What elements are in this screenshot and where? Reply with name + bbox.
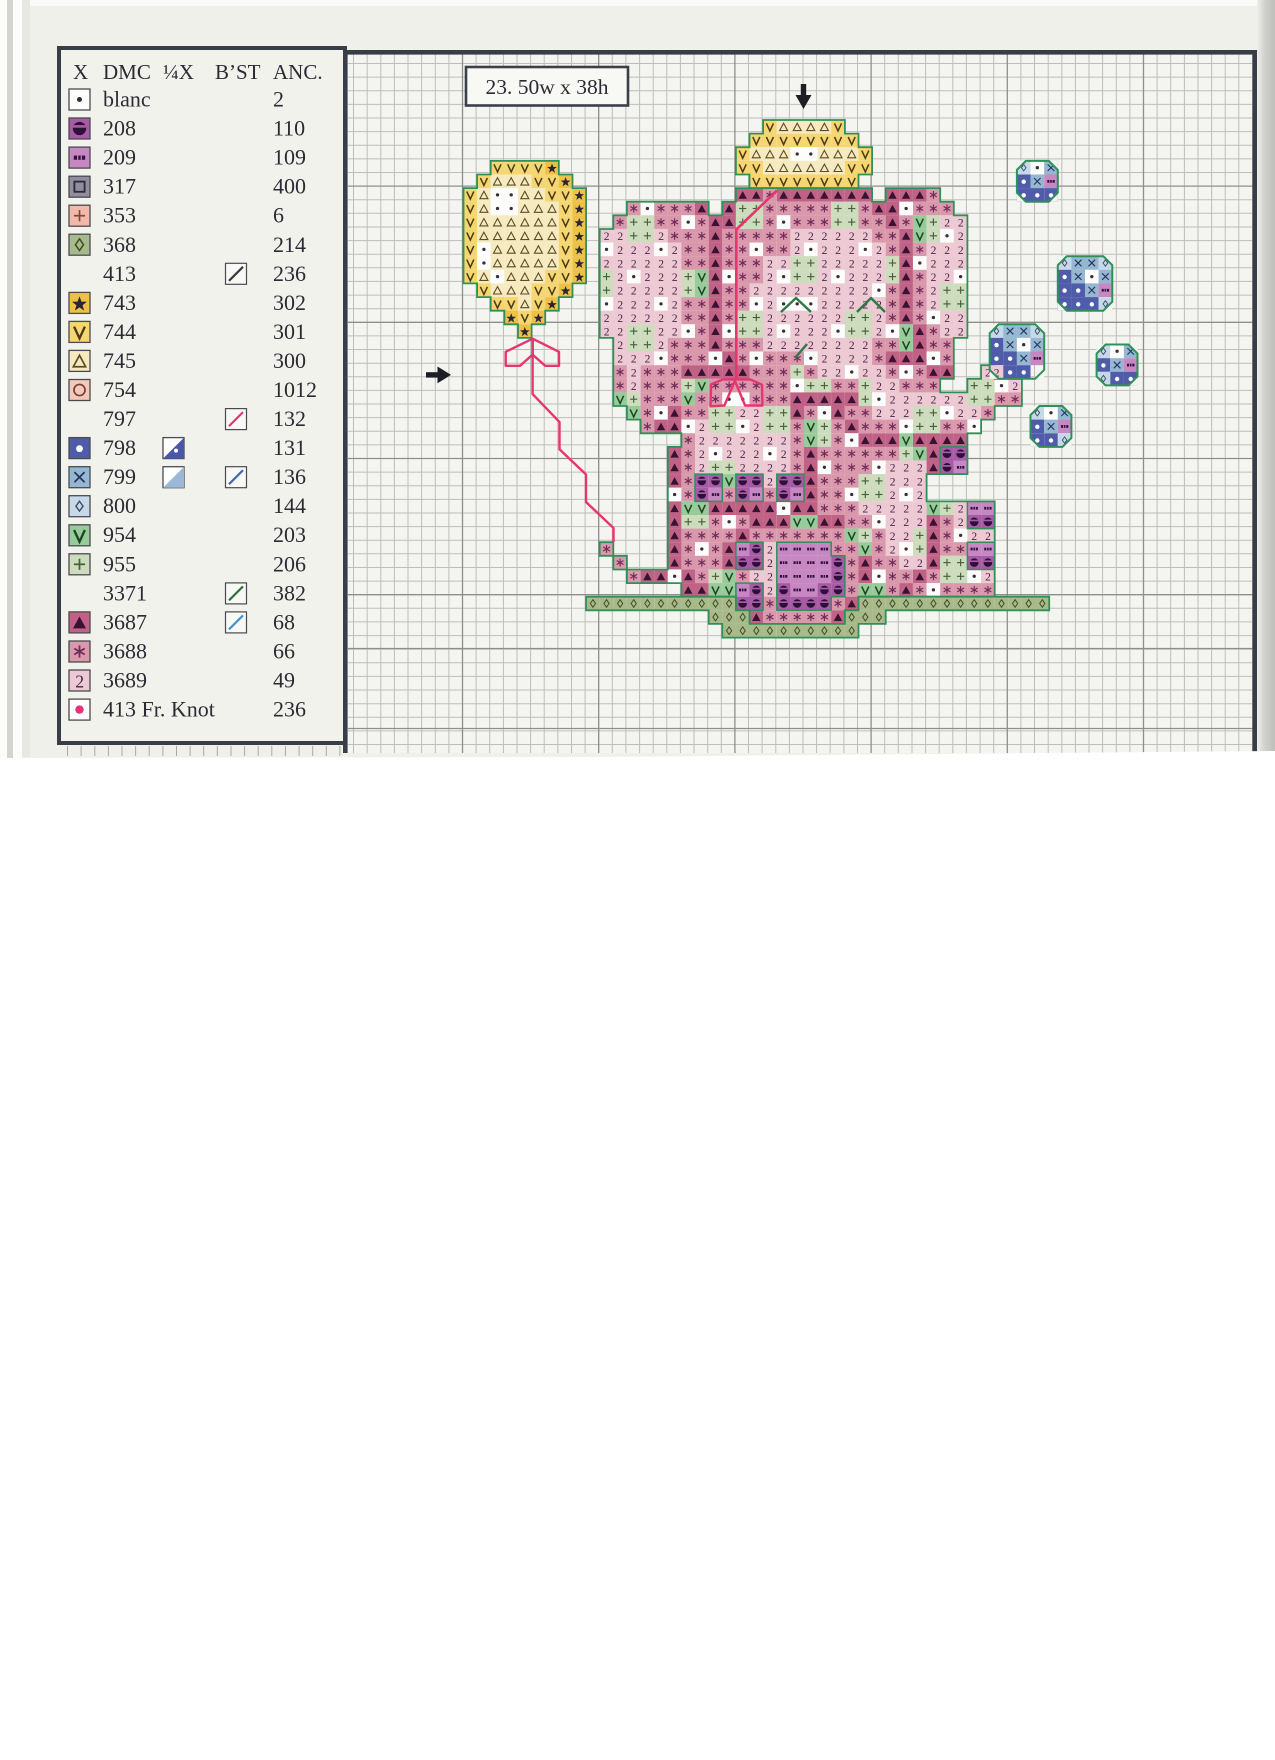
- svg-text:68: 68: [273, 609, 295, 634]
- svg-text:754: 754: [103, 377, 136, 402]
- svg-text:744: 744: [103, 319, 136, 344]
- svg-text:214: 214: [273, 232, 306, 257]
- svg-text:236: 236: [273, 261, 306, 286]
- svg-text:X: X: [73, 60, 88, 84]
- svg-text:131: 131: [273, 435, 306, 460]
- svg-text:797: 797: [103, 406, 136, 431]
- svg-text:209: 209: [103, 145, 136, 170]
- svg-text:3371: 3371: [103, 580, 147, 605]
- svg-text:109: 109: [273, 145, 306, 170]
- svg-text:368: 368: [103, 232, 136, 257]
- svg-text:3687: 3687: [103, 609, 147, 634]
- svg-text:DMC: DMC: [103, 60, 151, 84]
- svg-text:144: 144: [273, 493, 306, 518]
- svg-text:400: 400: [273, 174, 306, 199]
- svg-text:353: 353: [103, 203, 136, 228]
- svg-text:206: 206: [273, 551, 306, 576]
- svg-text:66: 66: [273, 639, 295, 664]
- svg-text:743: 743: [103, 290, 136, 315]
- svg-text:1012: 1012: [273, 377, 317, 402]
- svg-text:301: 301: [273, 319, 306, 344]
- svg-text:blanc: blanc: [103, 87, 151, 112]
- svg-text:317: 317: [103, 174, 136, 199]
- svg-text:745: 745: [103, 348, 136, 373]
- svg-text:6: 6: [273, 203, 284, 228]
- svg-text:955: 955: [103, 551, 136, 576]
- svg-text:236: 236: [273, 697, 306, 722]
- svg-text:302: 302: [273, 290, 306, 315]
- svg-text:300: 300: [273, 348, 306, 373]
- svg-text:203: 203: [273, 522, 306, 547]
- svg-text:800: 800: [103, 493, 136, 518]
- svg-text:49: 49: [273, 668, 295, 693]
- svg-text:954: 954: [103, 522, 136, 547]
- svg-text:136: 136: [273, 464, 306, 489]
- svg-text:413 Fr. Knot: 413 Fr. Knot: [103, 697, 215, 722]
- svg-text:23. 50w x 38h: 23. 50w x 38h: [485, 75, 608, 99]
- svg-text:413: 413: [103, 261, 136, 286]
- svg-text:799: 799: [103, 464, 136, 489]
- svg-text:798: 798: [103, 435, 136, 460]
- svg-text:3688: 3688: [103, 639, 147, 664]
- svg-text:¼X: ¼X: [163, 60, 194, 84]
- svg-text:3689: 3689: [103, 668, 147, 693]
- svg-text:B’ST: B’ST: [215, 60, 261, 84]
- svg-text:2: 2: [273, 87, 284, 112]
- svg-text:ANC.: ANC.: [273, 60, 323, 84]
- svg-text:110: 110: [273, 116, 305, 141]
- svg-text:382: 382: [273, 580, 306, 605]
- svg-text:132: 132: [273, 406, 306, 431]
- svg-text:208: 208: [103, 116, 136, 141]
